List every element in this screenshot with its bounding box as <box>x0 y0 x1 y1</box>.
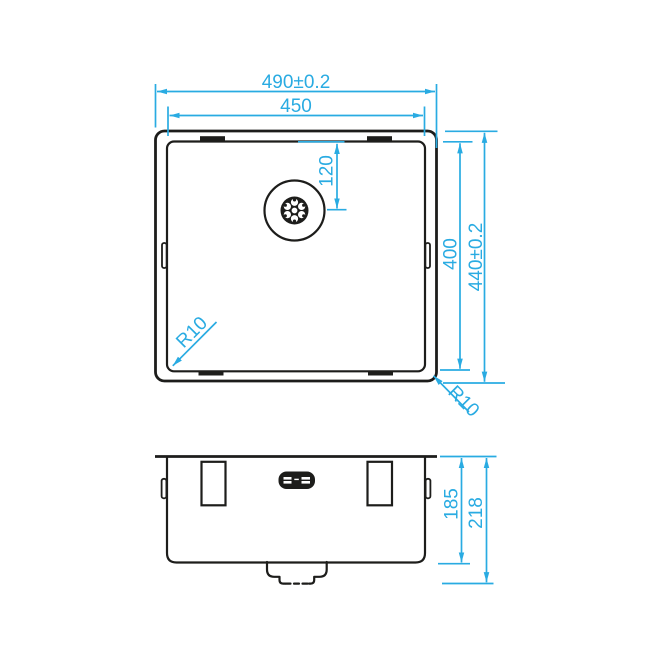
drain-outlet-profile <box>267 562 327 584</box>
mounting-clip-top-left <box>200 136 225 142</box>
mounting-clip-top-right <box>367 136 392 142</box>
clip-bracket-right <box>368 462 393 506</box>
mounting-clip-bottom-left <box>199 371 224 376</box>
front-view <box>155 457 437 584</box>
dim-label-overall-height: 218 <box>466 497 487 529</box>
dim-label-bowl-width: 450 <box>280 96 312 117</box>
mounting-clip-right <box>425 243 430 268</box>
rim-outline <box>156 131 437 381</box>
clip-bracket-left <box>202 462 226 506</box>
dim-label-bowl-height: 185 <box>442 488 463 520</box>
radius-callout-bowl: R10 <box>172 313 216 366</box>
radius-label-bowl: R10 <box>172 313 211 352</box>
dim-label-overall-depth: 440±0.2 <box>466 223 487 292</box>
plan-view <box>156 131 437 381</box>
dim-label-overall-width: 490±0.2 <box>262 72 331 93</box>
mounting-clip-left <box>162 243 167 268</box>
dim-label-drain-position: 120 <box>317 155 338 187</box>
bowl-outline <box>167 142 425 372</box>
side-clip-left <box>162 479 167 499</box>
mounting-clip-bottom-right <box>368 371 393 376</box>
drain-plan <box>265 181 325 241</box>
technical-drawing-page: 490±0.2 450 120 400 440±0.2 R10 R10 <box>0 0 656 663</box>
center-fixing-bracket <box>279 472 316 490</box>
radius-label-rim: R10 <box>444 382 483 421</box>
side-clip-right <box>426 479 431 499</box>
dim-label-bowl-depth: 400 <box>441 238 462 270</box>
sink-technical-drawing: 490±0.2 450 120 400 440±0.2 R10 R10 <box>0 0 656 663</box>
strainer-center-hole <box>292 208 298 214</box>
